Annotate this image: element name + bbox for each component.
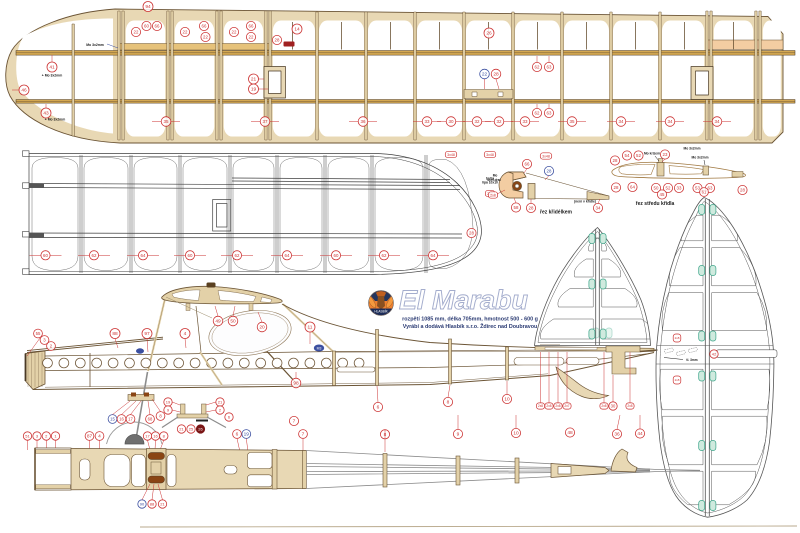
svg-text:46: 46 — [21, 88, 27, 94]
svg-text:2x8: 2x8 — [601, 404, 606, 408]
svg-text:32: 32 — [474, 119, 480, 124]
svg-text:HLASBÍK: HLASBÍK — [374, 310, 388, 314]
svg-text:15: 15 — [110, 417, 115, 422]
svg-text:26: 26 — [198, 426, 203, 431]
svg-text:52: 52 — [666, 186, 671, 191]
svg-text:2x8: 2x8 — [675, 378, 680, 382]
svg-text:22: 22 — [249, 35, 254, 40]
svg-text:36: 36 — [360, 119, 366, 124]
svg-text:63: 63 — [708, 186, 713, 191]
svg-text:60: 60 — [334, 253, 339, 258]
svg-text:88: 88 — [150, 501, 155, 506]
svg-text:66: 66 — [525, 162, 530, 167]
svg-text:66: 66 — [249, 24, 254, 29]
svg-text:Mo 3x2mm: Mo 3x2mm — [683, 147, 700, 151]
svg-text:20: 20 — [259, 325, 265, 331]
svg-text:62: 62 — [535, 111, 540, 116]
svg-text:Mo: Mo — [493, 174, 498, 178]
svg-text:97: 97 — [144, 331, 150, 337]
svg-text:22: 22 — [134, 30, 139, 35]
svg-text:3x48: 3x48 — [486, 153, 494, 157]
svg-text:2x8: 2x8 — [490, 193, 496, 197]
svg-text:48: 48 — [567, 430, 573, 436]
svg-text:33: 33 — [424, 119, 430, 124]
svg-text:26: 26 — [486, 31, 492, 37]
svg-text:30: 30 — [448, 119, 454, 124]
svg-text:22: 22 — [183, 30, 188, 35]
svg-text:6: 6 — [377, 405, 380, 411]
svg-text:28: 28 — [469, 231, 474, 236]
svg-text:10: 10 — [504, 397, 510, 403]
svg-text:22: 22 — [203, 35, 208, 40]
svg-text:8: 8 — [447, 400, 450, 406]
svg-text:2x8: 2x8 — [555, 404, 560, 408]
svg-text:2x7: 2x7 — [564, 404, 569, 408]
svg-text:2x8: 2x8 — [627, 404, 632, 408]
svg-text:62: 62 — [382, 253, 387, 258]
svg-text:35: 35 — [569, 119, 575, 124]
svg-text:98: 98 — [293, 381, 299, 387]
svg-text:7: 7 — [293, 419, 296, 425]
svg-text:34: 34 — [667, 119, 673, 124]
svg-text:64: 64 — [431, 253, 436, 258]
svg-text:M3: M3 — [317, 347, 322, 351]
svg-text:(není v křídle): (není v křídle) — [574, 200, 596, 204]
svg-text:33: 33 — [522, 119, 528, 124]
svg-text:3x48: 3x48 — [542, 154, 550, 158]
svg-text:28: 28 — [740, 188, 745, 193]
svg-text:34: 34 — [596, 206, 601, 211]
svg-text:50: 50 — [230, 319, 236, 325]
svg-text:10: 10 — [513, 431, 519, 437]
svg-text:3x48: 3x48 — [447, 153, 455, 157]
svg-text:64: 64 — [285, 253, 290, 258]
svg-text:+ Mo 3x2mm: + Mo 3x2mm — [45, 118, 65, 122]
svg-text:17: 17 — [145, 433, 150, 438]
svg-text:42: 42 — [712, 351, 717, 356]
svg-text:62: 62 — [235, 253, 240, 258]
svg-text:14: 14 — [294, 27, 300, 33]
svg-text:34: 34 — [714, 119, 720, 124]
svg-text:21: 21 — [218, 399, 223, 404]
svg-text:řez křidélkem: řez křidélkem — [540, 210, 573, 216]
svg-text:66: 66 — [155, 24, 160, 29]
svg-text:54: 54 — [625, 153, 630, 158]
svg-text:55: 55 — [36, 331, 41, 336]
svg-text:2x8: 2x8 — [675, 336, 680, 340]
svg-text:7: 7 — [302, 432, 305, 438]
svg-text:16: 16 — [153, 433, 158, 438]
svg-text:ocel.drat: ocel.drat — [487, 178, 501, 182]
svg-text:4: 4 — [184, 331, 187, 337]
svg-text:6: 6 — [236, 432, 239, 438]
svg-text:19: 19 — [244, 432, 250, 438]
svg-text:28: 28 — [493, 72, 499, 78]
svg-text:28: 28 — [614, 185, 619, 190]
svg-text:2x8: 2x8 — [538, 404, 543, 408]
svg-text:51: 51 — [25, 433, 30, 438]
svg-text:53: 53 — [695, 186, 700, 191]
svg-text:rozpětí 1085 mm, délka 705mm,: rozpětí 1085 mm, délka 705mm, hmotnost 5… — [402, 317, 538, 323]
svg-text:Mo 3x2mm: Mo 3x2mm — [691, 156, 708, 160]
svg-text:32: 32 — [496, 119, 502, 124]
svg-text:62: 62 — [535, 65, 540, 70]
svg-text:49: 49 — [215, 319, 221, 325]
svg-text:50: 50 — [654, 186, 659, 191]
svg-text:řez středu křídla: řez středu křídla — [636, 201, 675, 207]
svg-text:63: 63 — [547, 111, 552, 116]
svg-text:34: 34 — [618, 119, 624, 124]
svg-text:16: 16 — [119, 417, 124, 422]
svg-text:90: 90 — [140, 501, 145, 506]
svg-text:19: 19 — [251, 87, 257, 93]
svg-text:28: 28 — [613, 158, 618, 163]
svg-text:19: 19 — [166, 399, 171, 404]
svg-text:22: 22 — [232, 30, 237, 35]
svg-text:64: 64 — [141, 253, 146, 258]
svg-text:33: 33 — [677, 186, 682, 191]
svg-text:+ Mo 3x2mm: + Mo 3x2mm — [42, 74, 62, 78]
svg-text:60: 60 — [144, 24, 149, 29]
svg-text:94: 94 — [145, 4, 151, 10]
svg-text:60: 60 — [188, 253, 193, 258]
svg-text:Mo 3x2mm: Mo 3x2mm — [86, 43, 104, 47]
svg-text:30: 30 — [611, 404, 616, 409]
svg-text:41: 41 — [49, 65, 55, 71]
svg-text:9: 9 — [457, 432, 460, 438]
svg-text:22: 22 — [482, 72, 488, 78]
svg-text:64: 64 — [630, 185, 635, 190]
svg-text:87: 87 — [87, 434, 93, 440]
svg-text:43: 43 — [43, 111, 49, 117]
svg-text:45: 45 — [660, 192, 665, 197]
svg-text:23: 23 — [663, 152, 668, 157]
svg-text:68: 68 — [148, 417, 153, 422]
svg-text:66: 66 — [202, 24, 207, 29]
svg-text:63: 63 — [547, 65, 552, 70]
svg-text:28: 28 — [529, 206, 534, 211]
svg-text:4: 4 — [98, 434, 101, 440]
svg-text:61: 61 — [702, 190, 707, 195]
svg-text:37: 37 — [262, 119, 268, 124]
svg-text:11: 11 — [308, 325, 313, 331]
svg-text:44: 44 — [637, 431, 643, 437]
svg-text:El Marabu: El Marabu — [399, 285, 529, 315]
svg-text:62: 62 — [92, 253, 97, 258]
svg-text:Vyrábí a dodává Hlasbík s.r.o.: Vyrábí a dodává Hlasbík s.r.o. Ždírec na… — [403, 322, 538, 330]
svg-text:17: 17 — [128, 417, 133, 422]
svg-text:21: 21 — [160, 501, 165, 506]
svg-text:tl. 3mm: tl. 3mm — [686, 358, 697, 362]
svg-text:2x8: 2x8 — [546, 404, 551, 408]
svg-text:Mo krizem: Mo krizem — [644, 152, 660, 156]
svg-text:88: 88 — [112, 331, 118, 337]
svg-text:58: 58 — [514, 205, 519, 210]
svg-text:28: 28 — [547, 169, 552, 174]
svg-text:60: 60 — [43, 253, 48, 258]
svg-text:21: 21 — [251, 77, 257, 83]
svg-text:28: 28 — [275, 38, 280, 43]
svg-text:52: 52 — [636, 153, 641, 158]
svg-text:36: 36 — [614, 432, 620, 438]
svg-text:21: 21 — [179, 426, 184, 431]
svg-text:25: 25 — [189, 426, 194, 431]
svg-text:35: 35 — [163, 119, 169, 124]
